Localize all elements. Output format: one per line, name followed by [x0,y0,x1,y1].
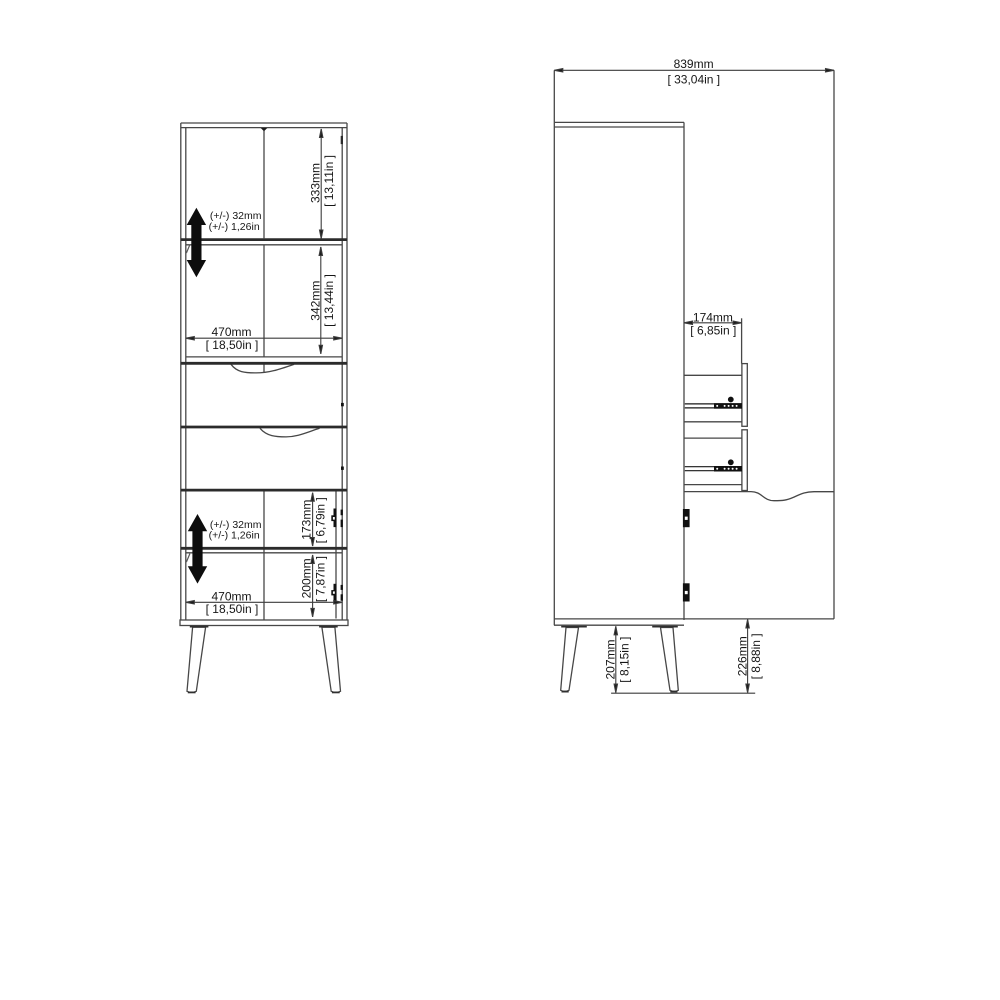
svg-text:[ 6,79in ]: [ 6,79in ] [314,497,328,543]
svg-text:470mm: 470mm [211,589,251,603]
svg-text:226mm: 226mm [736,636,750,676]
svg-text:[ 8,88in ]: [ 8,88in ] [749,633,763,679]
svg-text:470mm: 470mm [211,325,251,339]
svg-text:[ 7,87in ]: [ 7,87in ] [314,556,328,602]
svg-text:(+/-) 32mm: (+/-) 32mm [210,210,262,222]
svg-text:207mm: 207mm [604,639,618,679]
svg-text:200mm: 200mm [300,558,314,598]
svg-text:[ 8,15in ]: [ 8,15in ] [618,637,632,683]
svg-text:[ 13,11in ]: [ 13,11in ] [322,155,336,207]
svg-text:[ 6,85in ]: [ 6,85in ] [690,324,736,338]
svg-text:(+/-) 1,26in: (+/-) 1,26in [209,221,260,233]
svg-text:839mm: 839mm [674,57,714,71]
svg-text:[ 33,04in ]: [ 33,04in ] [667,73,720,87]
svg-text:342mm: 342mm [309,281,323,321]
svg-text:[ 13,44in ]: [ 13,44in ] [322,274,336,327]
svg-text:173mm: 173mm [300,500,314,540]
svg-text:(+/-) 1,26in: (+/-) 1,26in [209,529,260,541]
svg-text:[ 18,50in ]: [ 18,50in ] [206,338,259,352]
svg-text:333mm: 333mm [308,163,322,203]
svg-text:[ 18,50in ]: [ 18,50in ] [206,602,259,616]
svg-text:174mm: 174mm [693,310,733,324]
